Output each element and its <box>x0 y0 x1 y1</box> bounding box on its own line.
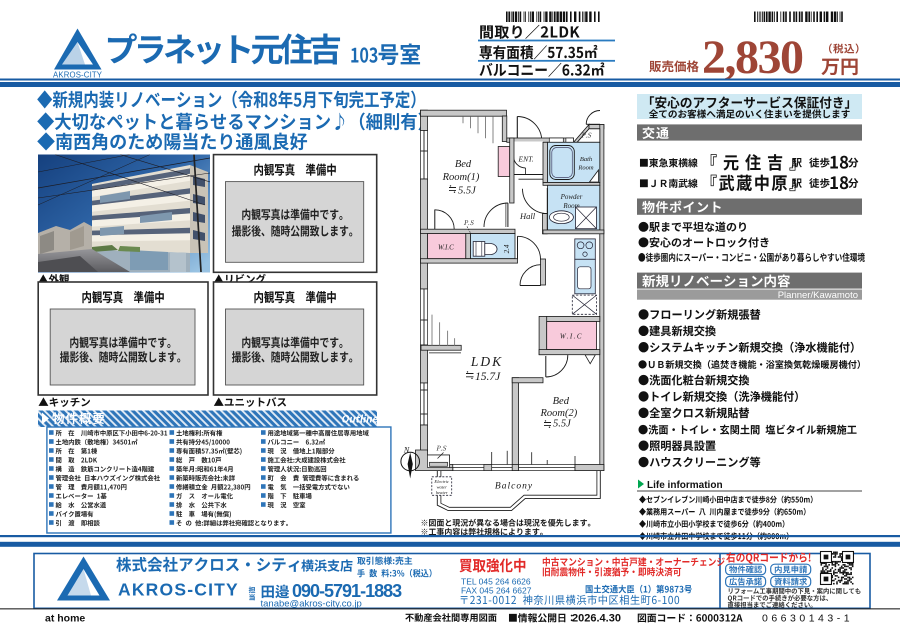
svg-text:Bed: Bed <box>553 396 570 407</box>
svg-text:Room: Room <box>577 165 593 172</box>
svg-text:N: N <box>403 446 410 455</box>
svg-text:tanabe@akros-city.co.jp: tanabe@akros-city.co.jp <box>261 599 362 610</box>
svg-text:Life information: Life information <box>647 480 723 491</box>
svg-text:Bath: Bath <box>580 156 592 163</box>
svg-text:heater: heater <box>436 490 448 495</box>
svg-text:water: water <box>436 485 447 490</box>
svg-text:at home: at home <box>45 613 85 625</box>
svg-text:Balcony: Balcony <box>495 482 533 492</box>
svg-text:AKROS-CITY: AKROS-CITY <box>118 580 239 600</box>
svg-text:Powder: Powder <box>560 193 583 201</box>
svg-text:Room(1): Room(1) <box>442 172 480 183</box>
svg-text:5.5J: 5.5J <box>553 419 572 430</box>
svg-text:Electric: Electric <box>433 479 449 484</box>
svg-text:W.I.C: W.I.C <box>438 244 454 252</box>
svg-text:Hall: Hall <box>519 211 536 221</box>
svg-text:15.7J: 15.7J <box>475 371 501 383</box>
svg-text:Bed: Bed <box>455 159 472 170</box>
svg-text:2026.4.30: 2026.4.30 <box>572 613 621 625</box>
svg-text:W.I.C: W.I.C <box>560 333 583 341</box>
svg-text:5.5J: 5.5J <box>458 186 477 197</box>
svg-text:06630143-1: 06630143-1 <box>762 613 853 625</box>
svg-text:Room(2): Room(2) <box>540 408 578 419</box>
svg-text:2,830: 2,830 <box>702 31 803 84</box>
svg-text:ENT.: ENT. <box>518 155 534 164</box>
svg-text:AKROS-CITY: AKROS-CITY <box>53 71 103 80</box>
svg-text:2.4: 2.4 <box>503 244 511 253</box>
svg-text:Planner/Kawamoto: Planner/Kawamoto <box>778 290 858 301</box>
svg-text:LDK: LDK <box>470 354 503 369</box>
svg-text:FAX 045 264 6627: FAX 045 264 6627 <box>461 586 532 596</box>
